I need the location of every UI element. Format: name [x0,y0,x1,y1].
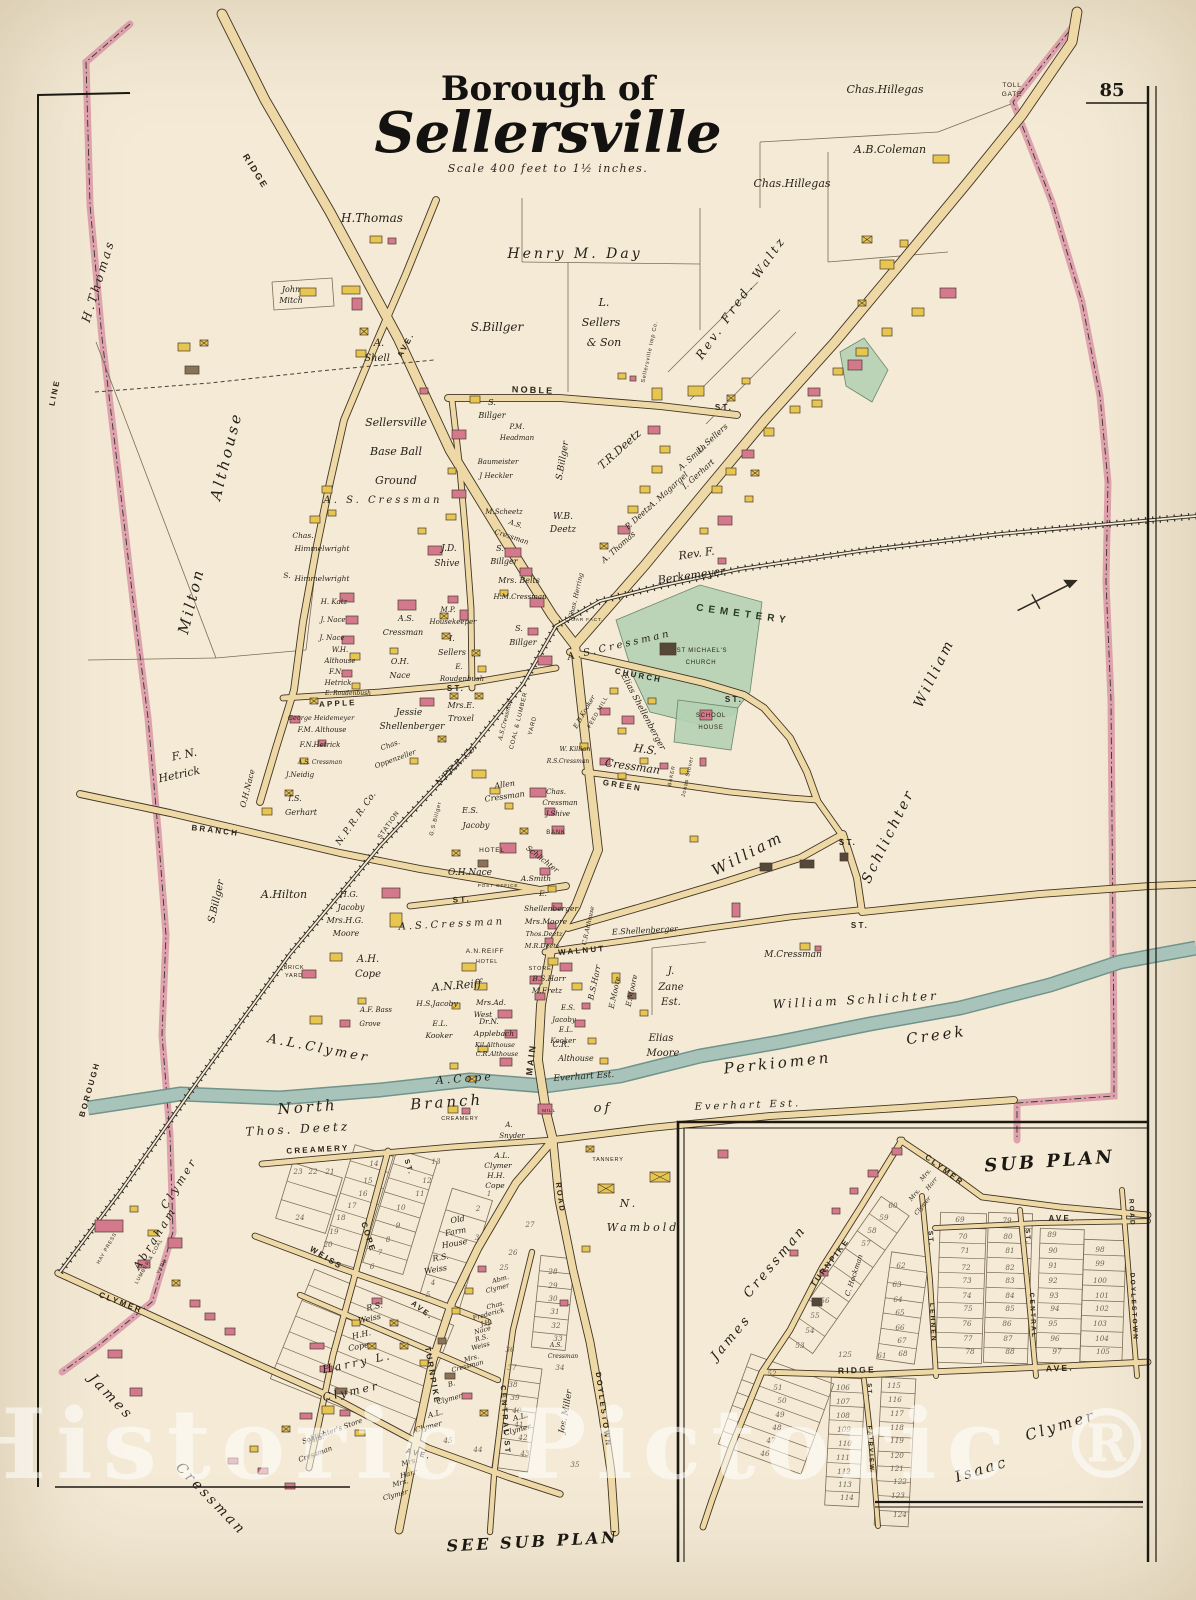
lot-number: 18 [336,1213,346,1222]
building [732,903,740,917]
map-label: S.Billger [555,440,572,481]
building [700,528,708,534]
building [452,490,466,498]
map-label: Clymer [158,1155,200,1211]
map-label: W.B. [553,512,573,522]
map-label: F.N. [328,668,343,676]
map-label: H.G. [339,890,358,899]
map-label: S. [515,624,523,633]
lot-number: 26 [507,1248,518,1257]
map-label: A.S.Cressman [397,916,505,933]
lot-number: 23 [292,1167,303,1176]
lot-number: 84 [1005,1291,1015,1300]
map-label: Chas. [380,738,401,752]
map-label: CHURCH [686,660,717,666]
building [718,516,732,525]
map-label: TOLL [1002,82,1021,89]
lot-number: 75 [963,1304,973,1313]
map-label: Henry M. Day [506,246,642,262]
lot-number: 91 [1048,1261,1057,1270]
map-label: A.S. [507,518,524,530]
map-label: J.Neidig [284,771,315,779]
map-label: E.Moore [607,975,623,1010]
lot-number: 57 [861,1239,871,1248]
map-label: LINE [47,378,61,406]
lot-grid [1080,1239,1126,1362]
map-label: House [440,1237,468,1251]
building [530,788,546,797]
map-label: Est. [660,997,681,1008]
map-label: E. [538,889,547,898]
building [882,328,892,336]
map-label: S. [496,544,504,553]
map-label: E.Moore [624,973,640,1008]
map-label: James [706,1312,755,1366]
map-label: Farm [443,1225,467,1238]
map-label: A.Hilton [260,888,307,901]
lot-number: 22 [307,1167,318,1176]
map-label: Zane [657,982,683,993]
lot-number: 85 [1005,1304,1015,1313]
building [588,1038,596,1044]
building [640,1010,648,1016]
map-label: POST OFFICE [478,883,519,889]
map-label: Billger [477,411,506,420]
building [390,648,398,654]
watermark: Historic Pictoric ® [0,1388,1164,1501]
map-label: S.Billger [206,878,227,924]
building [352,298,362,310]
map-label: ST MICHAEL'S [677,648,728,654]
map-label: ST. [839,838,857,847]
map-label: CIGAR FACT. [565,617,603,623]
map-label: ST. [447,684,465,693]
map-label: Jacoby [550,1016,577,1024]
building [850,1188,858,1194]
map-label: Cope [347,1340,369,1353]
lot-number: 124 [893,1510,907,1519]
map-label: O.H.Nace [448,868,492,878]
map-label: TANNERY [592,1157,623,1163]
lot-number: 105 [1096,1347,1110,1356]
map-label: Weiss [470,1340,491,1353]
map-label: ST. [403,1159,415,1177]
map-label: Mrs.Moore [524,917,568,926]
map-label: YARD [285,973,303,979]
map-label: & Son [587,336,622,349]
building [618,773,626,779]
lot-number: 101 [1095,1291,1109,1300]
building [438,1338,446,1344]
lot-number: 19 [329,1227,339,1236]
building [548,886,556,892]
street-st-west [410,890,540,906]
lot-number: 61 [877,1351,886,1360]
map-label: Kil.Althouse [474,1041,515,1049]
parcel-line [216,650,306,658]
map-label: SEE SUB PLAN [446,1528,619,1556]
map-label: A.S. [397,614,414,623]
building [640,486,650,493]
map-label: W.H. [332,646,349,654]
street-sub-ridge-ave [762,1362,1148,1375]
map-label: Cope [355,969,381,980]
map-label: HOUSE [698,725,723,731]
map-generated-layers: Chas.HillegasTOLLGATEChas.HillegasA.B.Co… [47,12,1196,1556]
map-label: Jessie [394,708,422,718]
map-label: R.S. [431,1252,450,1264]
lot-number: 21 [324,1167,334,1176]
lot-number: 67 [897,1336,907,1345]
compass-arrow [1013,576,1082,614]
lot-number: 20 [322,1240,333,1249]
building [528,628,538,635]
map-label: Nace [389,671,411,680]
building [800,943,810,950]
map-label: Ground [375,474,417,487]
building [660,763,668,769]
map-label: B.S.Harr [586,963,603,1002]
map-label: A.L.Clymer [265,1031,371,1066]
map-label: L. [598,296,610,309]
building [388,238,396,244]
map-label: Sellersville [365,416,427,429]
map-label: Chas.Hillegas [846,83,923,96]
lot-number: 32 [551,1321,561,1330]
lot-number: 93 [1049,1291,1059,1300]
map-label: Schlichter [859,787,918,886]
map-label: Cressman [383,628,423,637]
building [560,1300,568,1306]
map-label: T.R.Deetz [596,427,644,472]
map-label: H.Thomas [340,211,403,225]
building [462,963,476,971]
lot-number: 125 [838,1350,852,1359]
map-label: E.L. [558,1026,573,1034]
building [812,400,822,407]
lot-number: 69 [955,1215,965,1224]
map-label: H.S. [632,741,658,757]
lot-number: 55 [810,1311,820,1320]
lot-number: 81 [1005,1246,1014,1255]
lot-number: 37 [507,1363,517,1372]
borough-line-west [62,24,173,1372]
map-label: RIDGE [838,1364,876,1375]
building [398,600,416,610]
lot-number: 1 [487,1189,492,1198]
lot-number: 77 [963,1334,973,1343]
building [790,406,800,413]
building [652,466,662,473]
map-label: William [911,636,958,710]
map-label: S.Billger [471,320,525,334]
lot-number: 79 [1002,1216,1012,1225]
building [800,860,814,868]
building [840,853,848,861]
lot-number: 36 [505,1345,515,1354]
building [470,396,480,403]
map-label: A. [504,1121,512,1129]
map-label: S. [283,571,290,580]
building [652,388,662,400]
lot-number: 52 [767,1369,777,1378]
building [940,288,956,298]
lot-number: 76 [962,1319,972,1328]
map-label: M.R.Deetz [524,942,560,950]
building [742,450,754,458]
map-label: HOTEL [476,959,498,965]
lot-number: 31 [550,1307,559,1316]
parcel-line [96,342,216,658]
lot-number: 12 [422,1176,432,1185]
lot-number: 70 [958,1232,968,1241]
building [500,1058,512,1066]
map-label: Chas. [292,531,313,540]
building [428,546,442,555]
building [764,428,774,436]
map-label: Thos. Deetz [245,1119,350,1138]
map-label: J. Nace [318,616,345,624]
lot-number: 65 [895,1308,905,1317]
map-label: William Schlichter [772,989,939,1012]
lot-number: 89 [1047,1230,1057,1239]
creek [88,948,1196,1108]
building [520,568,532,576]
building [868,1170,878,1177]
building [190,1300,200,1307]
building [700,758,706,766]
catholic-green [840,338,888,402]
building [330,953,342,961]
map-label: Hetrick [324,679,352,687]
map-label: AVE. [1046,1363,1074,1374]
map-label: Mrs. Belts [497,576,540,585]
map-label: Troxel [448,714,474,723]
lot-number: 53 [795,1341,805,1350]
map-label: of [594,1101,613,1116]
map-label: Shellenberger [524,904,579,913]
lot-number: 27 [524,1220,535,1229]
building [420,698,434,706]
map-label: A.H. [356,954,379,965]
map-label: ST. [725,695,743,704]
building [310,516,320,523]
map-label: George Heidemeyer [288,714,355,722]
map-label: Shellenberger [380,722,446,732]
lot-number: 74 [962,1291,972,1300]
lot-number: 29 [547,1281,558,1290]
building [95,1220,123,1232]
map-label: E.S. [560,1004,575,1012]
building [880,260,894,269]
building [505,548,521,557]
map-label: HAY PRESS [96,1232,119,1266]
building [302,970,316,978]
building [610,688,618,694]
map-label: Jacoby [461,821,490,830]
lot-number: 104 [1095,1334,1109,1343]
map-label: Weiss [423,1263,447,1276]
map-label: O.H.Nace [238,768,256,808]
building [712,486,722,493]
building [410,758,418,764]
map-label: Creek [905,1022,967,1048]
building [450,1063,458,1069]
map-label: N.P.R.R. Co. [433,743,479,789]
parcel-line [522,262,700,264]
map-label: Shive [434,559,459,569]
building [582,1246,590,1252]
map-label: Cressman [542,799,578,807]
building [108,1350,122,1358]
lot-number: 98 [1095,1245,1105,1254]
building [933,155,949,163]
map-label: BANK [546,830,566,836]
building [370,236,382,243]
building [833,368,843,375]
map-label: STORE [529,966,552,972]
building [745,496,753,502]
map-label: Hetrick [156,764,201,786]
building [452,1308,460,1314]
map-label: Housekeeper [428,618,477,626]
map-label: YARD [528,716,539,736]
lot-number: 90 [1048,1246,1058,1255]
lot-number: 15 [363,1176,373,1185]
building [452,430,466,439]
lot-number: 102 [1095,1304,1109,1313]
building [832,1208,840,1214]
building [342,670,352,677]
map-label: Althouse [323,657,355,665]
building [600,1058,608,1064]
map-label: Grove [359,1020,380,1028]
lot-number: 78 [965,1347,975,1356]
map-label: Dr.N. [478,1017,499,1026]
map-label: Everhart Est. [693,1098,801,1113]
lot-number: 99 [1095,1259,1105,1268]
map-scale-note: Scale 400 feet to 1½ inches. [448,162,648,175]
map-label: BRICK [284,965,305,971]
building [505,803,513,809]
building [575,1020,585,1027]
map-label: Elias [648,1033,674,1044]
map-label: Mrs.E. [446,701,474,710]
map-label: ST. [1023,1229,1031,1245]
map-label: A.B.Coleman [853,143,926,156]
map-label: H. Katz [320,598,348,606]
map-label: I.S. [287,794,301,803]
building [130,1206,138,1212]
map-label: Billger [489,557,518,566]
map-label: J. [666,966,674,977]
street-sub-ave-top [935,1221,1148,1228]
map-label: Cressman [548,1353,578,1360]
lot-number: 73 [962,1276,972,1285]
building [448,596,458,603]
map-label: ST. [851,921,869,930]
building [660,643,676,655]
map-label: Thos.Deetz [526,930,563,938]
map-label: M.Cressman [763,950,822,960]
lot-number: 64 [893,1295,903,1304]
map-label: W. Killian [560,745,591,753]
building [718,558,726,564]
map-label: A.Smith [520,874,551,883]
map-label: Old [450,1214,466,1225]
building [560,963,572,971]
lot-number: 58 [867,1226,877,1235]
map-label: Althouse [206,410,246,504]
map-label: ROAD [1127,1199,1135,1227]
building [726,468,736,475]
building [310,1343,324,1349]
lot-number: 13 [431,1157,441,1166]
building [178,343,190,351]
lot-number: 7 [378,1248,383,1257]
lot-number: 97 [1052,1347,1062,1356]
map-label: SCHOOL [696,713,726,719]
building [448,468,456,474]
map-label: RIDGE [241,152,270,191]
lot-number: 9 [396,1221,401,1230]
map-label: P.M. [509,423,525,431]
map-title-line2: Sellersville [374,100,721,166]
building [310,1016,322,1024]
map-label: Himmelwright [293,544,350,553]
building [346,616,358,624]
lot-number: 33 [553,1334,563,1343]
map-label: A.L. [493,1151,509,1160]
lot-number: 10 [396,1203,406,1212]
lot-number: 80 [1003,1232,1013,1241]
lot-number: 83 [1005,1276,1015,1285]
map-label: Milton [174,566,208,637]
lane [95,360,434,392]
map-label: M.Fretz [531,986,562,995]
building [630,376,636,381]
map-page: Chas.HillegasTOLLGATEChas.HillegasA.B.Co… [0,0,1196,1600]
map-label: ST. [926,1231,934,1247]
map-label: Mitch [278,296,303,305]
map-label: R.S.Cressman [546,758,590,765]
map-label: Headman [499,434,535,442]
building [582,1003,590,1009]
parcel-line [652,942,706,948]
building [205,1313,215,1320]
lot-number: 4 [430,1278,436,1287]
map-label: Clymer [484,1161,512,1170]
building [648,426,660,434]
map-label: A.S. [549,1342,562,1349]
map-label: H.H. [486,1171,505,1180]
building [618,373,626,379]
map-label: J Heckler [477,472,513,480]
building [688,386,704,396]
map-label: A. [373,338,384,349]
map-label: S. [488,398,496,407]
lot-number: 96 [1050,1334,1060,1343]
building [892,1148,902,1155]
map-label: AVE. [1049,1214,1076,1223]
building [660,446,670,453]
map-label: A.N.REIFF [466,948,505,955]
lot-number: 25 [498,1263,509,1272]
map-label: CREAMERY [441,1116,478,1122]
lot-number: 59 [879,1213,889,1222]
building [848,360,862,370]
building [742,378,750,384]
